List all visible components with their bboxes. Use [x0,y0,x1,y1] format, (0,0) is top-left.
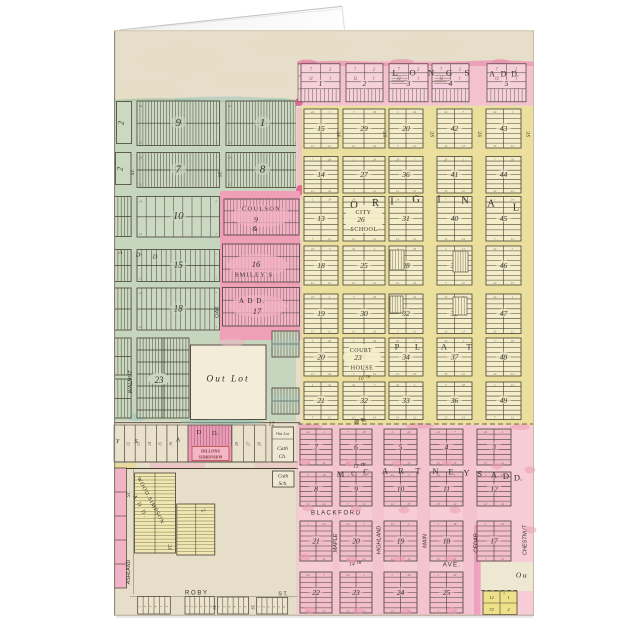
svg-text:11: 11 [354,419,359,425]
svg-text:13: 13 [407,502,411,506]
svg-text:19: 19 [397,536,405,545]
svg-text:29: 29 [234,442,239,446]
svg-text:12: 12 [444,416,448,420]
svg-text:24: 24 [444,158,448,162]
svg-text:COULSON: COULSON [242,206,281,213]
svg-text:12: 12 [396,281,400,285]
svg-text:24: 24 [391,522,395,526]
svg-text:7: 7 [310,67,312,71]
svg-text:18: 18 [413,247,417,251]
svg-text:ST.: ST. [479,131,484,138]
svg-text:24: 24 [493,295,497,299]
svg-text:25: 25 [443,588,451,597]
svg-text:Cath: Cath [278,474,288,480]
svg-text:18: 18 [443,536,451,545]
svg-text:13: 13 [437,502,441,506]
svg-text:WALNUT: WALNUT [128,370,134,394]
svg-text:29: 29 [360,124,368,133]
svg-text:12: 12 [352,237,356,241]
svg-text:18: 18 [407,573,411,577]
svg-text:12: 12 [407,461,411,465]
svg-text:AVE.: AVE. [443,562,461,569]
svg-text:18: 18 [317,261,325,270]
svg-text:18: 18 [362,430,366,434]
svg-text:SCHOOL: SCHOOL [350,227,377,233]
svg-text:12: 12 [139,183,143,187]
svg-text:D: D [135,252,141,259]
svg-text:24: 24 [328,372,332,376]
svg-text:SUBDIVISION: SUBDIVISION [199,456,223,460]
svg-text:R O B Y: R O B Y [185,591,207,597]
svg-text:TH: TH [360,418,365,422]
svg-text:12: 12 [311,372,315,376]
svg-text:30: 30 [359,309,368,318]
svg-text:ST.: ST. [431,131,436,138]
svg-text:24: 24 [373,144,377,148]
svg-text:7: 7 [496,67,498,71]
svg-text:12: 12 [309,76,313,80]
svg-text:11: 11 [443,484,450,493]
svg-text:12: 12 [328,144,332,148]
svg-text:13: 13 [373,237,377,241]
svg-text:24: 24 [352,247,356,251]
svg-text:12: 12 [490,484,498,493]
svg-text:24: 24 [322,502,326,506]
svg-text:24: 24 [352,383,356,387]
svg-text:12: 12 [413,237,417,241]
svg-text:12: 12 [462,189,466,193]
svg-text:24: 24 [407,430,411,434]
svg-text:15: 15 [174,260,184,270]
svg-text:12: 12 [413,330,417,334]
svg-text:9: 9 [175,117,181,129]
svg-text:12: 12 [228,141,232,145]
svg-text:24: 24 [511,198,515,202]
svg-text:O: O [409,68,415,78]
svg-text:12: 12 [139,277,143,281]
svg-text:24: 24 [501,502,505,506]
svg-text:24: 24 [139,200,143,204]
svg-text:2: 2 [117,121,126,125]
svg-text:1: 1 [373,76,375,80]
svg-text:12: 12 [139,325,143,329]
svg-text:A: A [118,249,123,256]
svg-text:D: D [197,429,202,436]
svg-text:A D D.: A D D. [239,297,265,305]
svg-text:12: 12 [373,281,377,285]
svg-text:24: 24 [501,522,505,526]
svg-text:DILLONS: DILLONS [201,449,221,454]
svg-text:T: T [415,466,421,476]
svg-text:24: 24 [396,158,400,162]
svg-text:24: 24 [373,339,377,343]
svg-text:12: 12 [511,416,515,420]
svg-text:24: 24 [311,247,315,251]
svg-text:13: 13 [396,237,400,241]
svg-text:5: 5 [503,592,505,596]
svg-text:24: 24 [396,198,400,202]
svg-text:L: L [513,203,519,214]
svg-text:P: P [395,342,400,352]
svg-text:24: 24 [346,573,350,577]
svg-text:12: 12 [511,330,515,334]
svg-text:24: 24 [437,430,441,434]
svg-text:22: 22 [312,588,320,597]
svg-text:CEDAR: CEDAR [474,533,480,552]
svg-text:I: I [390,197,394,208]
svg-text:2: 2 [329,67,331,71]
svg-text:24: 24 [311,295,315,299]
svg-text:16: 16 [252,259,261,269]
svg-text:9: 9 [354,484,358,493]
svg-text:18: 18 [453,522,457,526]
svg-text:12: 12 [444,144,448,148]
svg-text:12: 12 [311,189,315,193]
svg-text:24: 24 [413,295,417,299]
svg-text:24: 24 [462,237,466,241]
svg-text:18: 18 [373,110,377,114]
svg-text:T: T [466,342,472,352]
svg-text:12: 12 [322,557,326,561]
svg-text:12: 12 [396,189,400,193]
svg-text:12: 12 [352,144,356,148]
svg-text:12: 12 [362,502,366,506]
svg-text:12: 12 [489,595,494,600]
svg-text:Ch.: Ch. [279,454,287,460]
svg-text:49: 49 [500,396,508,405]
svg-text:13: 13 [328,281,332,285]
svg-text:13: 13 [362,557,366,561]
svg-text:12: 12 [484,502,488,506]
svg-text:46: 46 [500,261,508,270]
svg-text:24: 24 [306,573,310,577]
svg-text:D: D [503,471,509,481]
svg-text:24: 24 [511,383,515,387]
svg-text:13: 13 [413,372,417,376]
svg-text:O: O [350,200,358,211]
svg-text:34: 34 [401,352,410,361]
svg-text:1: 1 [319,79,323,88]
svg-text:13: 13 [493,330,497,334]
svg-text:G: G [412,195,420,206]
svg-text:24: 24 [328,189,332,193]
svg-text:36: 36 [401,170,410,179]
svg-text:12: 12 [453,502,457,506]
svg-text:12: 12 [501,557,505,561]
svg-text:L: L [392,68,397,78]
svg-text:A: A [489,70,495,79]
svg-text:24: 24 [228,156,232,160]
svg-text:24: 24 [228,104,232,108]
svg-text:10: 10 [358,376,364,382]
svg-text:MAPLE: MAPLE [333,533,339,552]
svg-text:24: 24 [413,110,417,114]
svg-text:12: 12 [353,76,357,80]
svg-text:12: 12 [228,183,232,187]
svg-text:6: 6 [354,442,358,451]
svg-text:D.: D. [212,430,219,437]
svg-text:ST.: ST. [169,544,174,550]
svg-text:24: 24 [139,156,143,160]
svg-text:18: 18 [328,158,332,162]
svg-text:12: 12 [413,144,417,148]
svg-text:G: G [446,68,453,78]
svg-text:15: 15 [157,442,162,446]
svg-text:26: 26 [257,442,262,446]
svg-text:24: 24 [493,247,497,251]
svg-text:A: A [441,342,448,352]
svg-text:24: 24 [322,522,326,526]
svg-text:18: 18 [174,304,184,314]
svg-text:3: 3 [491,442,496,451]
svg-text:21: 21 [312,536,320,545]
svg-text:19: 19 [317,309,325,318]
svg-text:12: 12 [373,189,377,193]
svg-text:20: 20 [352,536,360,545]
svg-text:OAK: OAK [215,306,221,318]
svg-text:1: 1 [329,76,331,80]
svg-text:C: C [363,467,369,477]
svg-text:HIGHLAND: HIGHLAND [377,526,383,554]
svg-text:1: 1 [260,117,266,129]
svg-text:24: 24 [396,383,400,387]
svg-text:13: 13 [462,144,466,148]
svg-text:42: 42 [451,124,459,133]
svg-text:31: 31 [401,214,410,223]
svg-text:13: 13 [511,281,515,285]
svg-text:14: 14 [147,442,152,446]
svg-text:24: 24 [511,372,515,376]
svg-text:72: 72 [489,607,494,612]
svg-text:12: 12 [444,237,448,241]
svg-text:MAIN: MAIN [423,534,429,548]
svg-text:A: A [175,437,180,444]
svg-text:N: N [432,466,438,476]
svg-text:12: 12 [511,144,515,148]
svg-text:24: 24 [373,158,377,162]
svg-text:21: 21 [317,396,325,405]
svg-text:D.: D. [514,473,522,483]
svg-text:ST.: ST. [212,604,217,609]
svg-text:18: 18 [462,383,466,387]
svg-text:12: 12 [328,237,332,241]
svg-text:12: 12 [493,281,497,285]
svg-text:26: 26 [357,215,365,224]
svg-text:24: 24 [413,281,417,285]
svg-text:48: 48 [500,352,508,361]
svg-text:24: 24 [373,330,377,334]
svg-text:Cath: Cath [277,446,288,452]
svg-text:8: 8 [314,484,318,493]
svg-text:TH: TH [361,463,366,467]
svg-text:24: 24 [462,416,466,420]
svg-text:N: N [461,196,469,207]
svg-text:M: M [337,469,345,479]
svg-text:I: I [437,195,441,206]
svg-text:2: 2 [116,167,125,171]
svg-text:13: 13 [462,330,466,334]
svg-text:13: 13 [444,372,448,376]
svg-text:HOUSE: HOUSE [351,366,374,372]
svg-text:12: 12 [311,281,315,285]
svg-text:Y: Y [463,468,469,478]
svg-text:7: 7 [440,67,442,71]
svg-text:ST.: ST. [527,131,532,138]
svg-text:12: 12 [352,330,356,334]
svg-text:ST.: ST. [131,169,136,176]
svg-text:ASHLAND: ASHLAND [126,560,132,586]
svg-text:7: 7 [354,67,356,71]
svg-text:13: 13 [444,189,448,193]
svg-text:12: 12 [391,502,395,506]
svg-text:S: S [465,68,470,78]
svg-text:23: 23 [354,353,362,362]
svg-text:TH: TH [366,375,371,379]
svg-text:12: 12 [373,372,377,376]
svg-text:24: 24 [397,588,405,597]
svg-text:13: 13 [322,609,326,613]
svg-text:37: 37 [450,352,460,361]
svg-text:'S: 'S [476,469,483,479]
svg-text:13: 13 [453,461,457,465]
svg-text:47: 47 [500,309,509,318]
svg-text:1: 1 [417,76,419,80]
svg-text:18: 18 [328,339,332,343]
svg-text:14: 14 [317,170,325,179]
svg-text:41: 41 [451,170,459,179]
svg-text:25: 25 [360,261,368,270]
svg-text:7: 7 [398,67,400,71]
svg-text:13: 13 [493,144,497,148]
svg-text:44: 44 [500,170,508,179]
svg-text:ST.: ST. [384,131,389,138]
svg-text:2: 2 [373,67,375,71]
svg-text:24: 24 [139,291,143,295]
svg-text:24: 24 [346,522,350,526]
svg-text:24: 24 [511,189,515,193]
svg-text:16: 16 [168,442,173,446]
svg-text:E: E [448,467,453,477]
svg-text:Out Lot: Out Lot [206,375,249,385]
svg-text:12: 12 [407,557,411,561]
svg-text:12: 12 [444,330,448,334]
svg-text:17: 17 [490,536,499,545]
svg-text:24: 24 [453,573,457,577]
svg-text:24: 24 [484,430,488,434]
svg-text:13: 13 [391,557,395,561]
svg-text:13: 13 [373,416,377,420]
svg-text:12: 12 [328,416,332,420]
svg-text:Ou: Ou [516,571,528,580]
svg-text:23: 23 [352,588,360,597]
svg-text:7: 7 [175,164,181,176]
svg-text:D.: D. [511,70,519,79]
svg-text:13: 13 [396,416,400,420]
svg-text:12: 12 [391,609,395,613]
svg-text:4: 4 [445,442,449,451]
svg-text:12: 12 [493,189,497,193]
svg-text:R: R [372,198,379,209]
svg-text:5: 5 [505,79,509,88]
svg-text:10: 10 [173,211,184,222]
svg-text:2: 2 [459,67,461,71]
svg-text:12: 12 [328,330,332,334]
svg-text:15: 15 [317,124,325,133]
svg-text:24: 24 [306,430,310,434]
svg-text:17: 17 [253,306,262,316]
svg-text:20: 20 [317,352,325,361]
svg-text:N: N [428,68,435,78]
svg-text:12: 12 [322,461,326,465]
svg-text:&: & [252,225,258,233]
svg-text:1: 1 [459,76,461,80]
svg-text:24: 24 [493,110,497,114]
svg-text:13: 13 [352,281,356,285]
svg-text:SMILEY'S: SMILEY'S [235,272,274,279]
svg-text:45: 45 [500,214,508,223]
svg-text:D: D [501,70,507,79]
svg-text:A: A [491,470,498,480]
svg-text:33: 33 [401,396,410,405]
svg-text:12: 12 [413,416,417,420]
svg-text:9: 9 [254,215,258,224]
svg-text:24: 24 [444,295,448,299]
svg-text:18: 18 [322,473,326,477]
svg-text:8: 8 [260,164,266,176]
svg-text:18: 18 [373,295,377,299]
svg-text:L: L [415,342,420,352]
svg-text:24: 24 [328,383,332,387]
svg-text:40: 40 [451,214,459,223]
svg-text:18: 18 [511,158,515,162]
svg-text:2: 2 [417,67,419,71]
svg-text:10: 10 [397,484,405,493]
svg-text:12: 12 [396,372,400,376]
svg-text:24: 24 [311,110,315,114]
svg-text:A: A [382,466,389,476]
svg-text:12: 12 [437,557,441,561]
svg-text:ST.: ST. [338,131,343,138]
svg-text:2: 2 [363,79,367,88]
svg-text:12: 12 [437,461,441,465]
svg-text:1: 1 [507,595,509,600]
svg-text:Sch.: Sch. [279,481,288,487]
svg-text:A: A [487,199,495,210]
svg-text:13: 13 [311,330,315,334]
svg-text:24: 24 [139,104,143,108]
svg-text:12: 12 [495,76,499,80]
svg-text:TH: TH [357,561,362,565]
svg-text:43: 43 [500,124,508,133]
svg-text:ST.: ST. [251,604,256,609]
svg-text:20: 20 [402,124,410,133]
svg-text:ST.: ST. [219,171,224,178]
svg-text:24: 24 [462,247,466,251]
svg-text:12: 12 [139,141,143,145]
svg-text:24: 24 [328,198,332,202]
svg-text:12: 12 [462,281,466,285]
svg-text:12: 12 [462,372,466,376]
svg-text:13: 13 [484,461,488,465]
svg-text:12: 12 [139,232,143,236]
svg-text:12: 12 [126,442,131,446]
svg-text:D: D [152,254,158,261]
svg-text:5: 5 [399,442,403,451]
svg-text:12: 12 [493,372,497,376]
svg-text:24: 24 [444,110,448,114]
svg-text:23: 23 [155,375,165,385]
svg-text:18: 18 [511,339,515,343]
